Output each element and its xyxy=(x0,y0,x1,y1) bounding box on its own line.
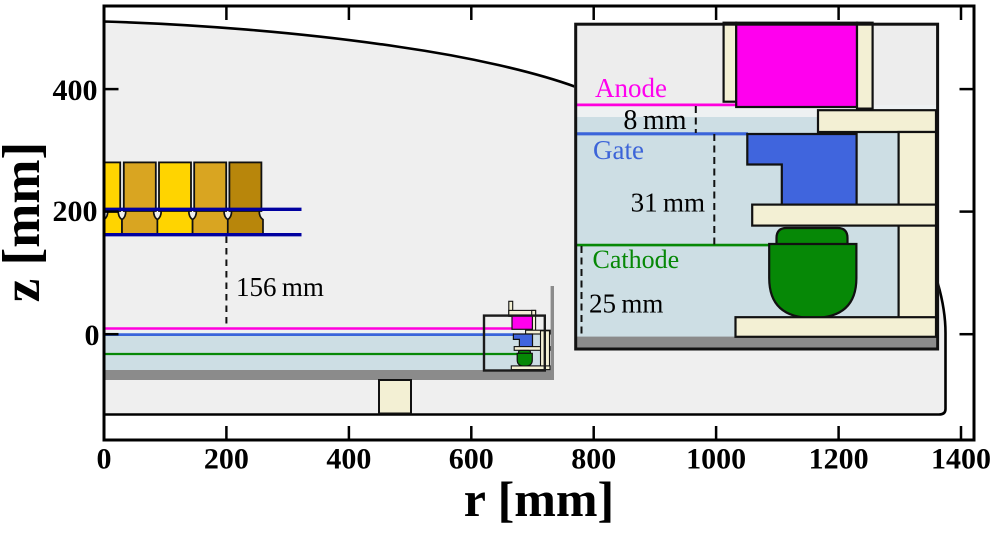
svg-text:200: 200 xyxy=(204,443,249,476)
svg-text:0: 0 xyxy=(85,319,100,352)
svg-text:400: 400 xyxy=(53,74,98,107)
svg-text:Anode: Anode xyxy=(595,73,667,103)
svg-text:0: 0 xyxy=(97,443,112,476)
svg-text:Gate: Gate xyxy=(593,135,644,165)
svg-text:r [mm]: r [mm] xyxy=(464,471,614,527)
svg-text:25 mm: 25 mm xyxy=(589,289,663,319)
svg-text:200: 200 xyxy=(53,195,98,228)
svg-text:8 mm: 8 mm xyxy=(623,105,686,136)
svg-text:1400: 1400 xyxy=(931,443,991,476)
svg-text:400: 400 xyxy=(326,443,371,476)
svg-text:Cathode: Cathode xyxy=(593,245,680,274)
svg-text:1200: 1200 xyxy=(809,443,869,476)
svg-text:1000: 1000 xyxy=(686,443,746,476)
svg-text:z [mm]: z [mm] xyxy=(0,142,51,302)
svg-text:156 mm: 156 mm xyxy=(236,272,324,302)
svg-text:31 mm: 31 mm xyxy=(631,188,705,218)
